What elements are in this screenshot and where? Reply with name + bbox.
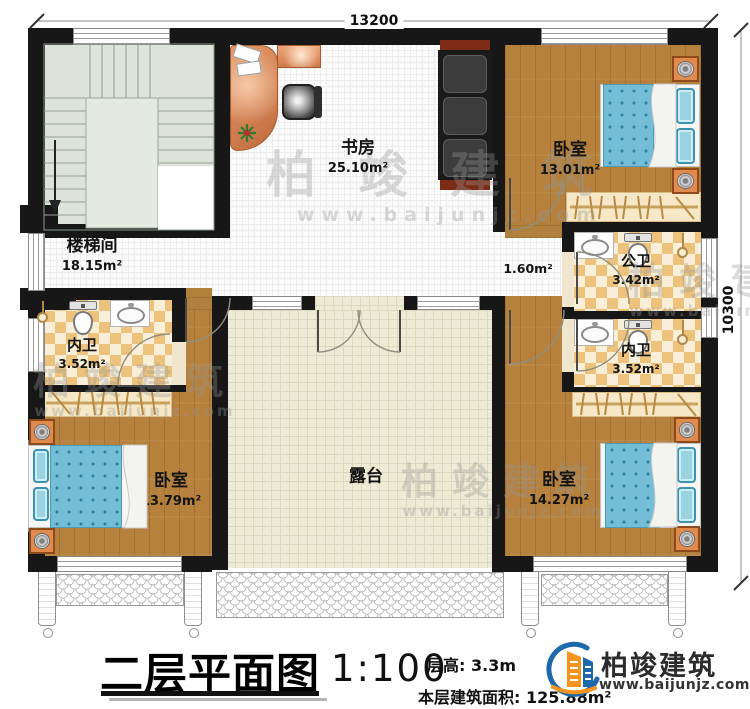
sink-counter: [110, 300, 150, 327]
porch-post: [184, 570, 202, 626]
nightstand-knob: [679, 531, 695, 547]
closet-top-right: [566, 192, 701, 222]
wall: [574, 311, 701, 319]
bed-pillow: [677, 487, 696, 523]
faucet-icon: [128, 303, 134, 307]
room-label-public-bathroom: 公卫3.42m²: [612, 252, 659, 288]
wall: [701, 338, 718, 572]
hallway-area-label: 1.60m²: [503, 259, 552, 277]
window: [701, 238, 718, 298]
brand-website: www.baijunjz.com: [599, 677, 750, 693]
room-label-bedroom-tr: 卧室13.01m²: [540, 141, 600, 179]
balcony-rail-right: [541, 574, 668, 606]
post-finial: [673, 628, 683, 638]
nightstand-knob: [34, 533, 50, 549]
window: [417, 296, 480, 310]
wall: [228, 296, 252, 310]
wall: [701, 28, 718, 238]
wall: [214, 28, 230, 238]
bed-pillow: [33, 449, 49, 483]
wall: [687, 556, 718, 572]
title-underline: [101, 691, 319, 696]
wall: [480, 296, 505, 310]
bed-pillow: [676, 88, 695, 124]
dimension-top: 13200: [345, 13, 404, 29]
wall: [562, 307, 574, 319]
nightstand-knob: [677, 61, 694, 77]
bed-pillow: [676, 128, 695, 164]
nightstand: [672, 168, 699, 194]
terrace-rail: [216, 572, 504, 618]
post-finial: [526, 628, 536, 638]
wall: [172, 300, 186, 342]
room-label-stairwell: 楼梯间18.15m²: [62, 237, 122, 275]
nightstand: [674, 526, 700, 552]
sofa-cushion: [443, 55, 487, 93]
title-underline-shadow: [109, 698, 327, 701]
wall: [28, 288, 186, 300]
faucet-icon: [592, 322, 598, 326]
sofa: [440, 180, 490, 190]
bed-mattress: [603, 84, 654, 167]
window: [252, 296, 302, 310]
sink-icon: [117, 307, 145, 324]
window: [57, 556, 182, 572]
closet-bottom-left: [44, 390, 172, 417]
sink-counter: [574, 319, 614, 346]
sink-icon: [581, 239, 609, 256]
wall: [28, 556, 57, 572]
window: [28, 318, 45, 372]
office-chair: [282, 84, 316, 120]
office-chair-back: [314, 86, 322, 118]
window: [73, 28, 170, 45]
doorway-ensuite-right: [562, 319, 574, 372]
wall: [302, 296, 315, 310]
porch-post: [668, 570, 686, 626]
sink-counter: [574, 232, 614, 259]
nightstand: [672, 56, 699, 82]
wall: [28, 28, 45, 233]
sofa-cushion: [443, 139, 487, 177]
post-finial: [43, 628, 53, 638]
room-label-study: 书房25.10m²: [328, 139, 388, 177]
faucet-icon: [592, 235, 598, 239]
doorway-bedroom-top-right: [505, 222, 562, 238]
sink-icon: [581, 326, 609, 343]
nightstand: [29, 528, 55, 554]
floor-drain-icon: [677, 247, 688, 258]
dimension-right: 10300: [721, 281, 737, 340]
doorway-ensuite-left: [172, 342, 186, 385]
wall: [28, 224, 214, 238]
wall: [493, 178, 505, 232]
bed-pillow: [677, 447, 696, 483]
wall: [182, 556, 212, 572]
room-label-bedroom-br: 卧室14.27m²: [529, 471, 589, 509]
balcony-rail-left: [56, 574, 184, 606]
nightstand-knob: [677, 173, 694, 189]
nightstand: [29, 419, 55, 445]
doorway-bedroom-bottom-left: [186, 288, 212, 310]
porch-post: [38, 570, 56, 626]
wall: [212, 296, 228, 570]
sofa: [440, 40, 490, 50]
toilet-icon: [69, 301, 97, 335]
bed-pillow: [33, 487, 49, 521]
brand-logo-icon: [543, 641, 601, 699]
wall: [404, 296, 417, 310]
floor-height-label: 层高: 3.3m: [427, 652, 516, 676]
closet-bottom-right: [572, 392, 701, 417]
stair-down-label: 下: [187, 207, 206, 228]
wall: [562, 222, 718, 232]
nightstand-knob: [34, 424, 50, 440]
bed-mattress: [50, 445, 122, 528]
nightstand: [674, 417, 700, 443]
room-label-ensuite-left: 内卫3.52m²: [58, 336, 105, 372]
wall: [44, 385, 186, 392]
post-finial: [189, 628, 199, 638]
floor-drain-icon: [677, 334, 688, 345]
room-label-terrace: 露台: [349, 467, 383, 486]
room-label-bedroom-bl: 卧室13.79m²: [141, 472, 201, 510]
window: [541, 28, 668, 45]
wall: [492, 310, 505, 570]
wall: [562, 387, 701, 392]
window: [28, 233, 45, 291]
desk-return: [277, 45, 321, 68]
nightstand-knob: [679, 422, 695, 438]
doorway-public-bathroom: [562, 252, 574, 307]
porch-post: [521, 570, 539, 626]
wall: [701, 298, 718, 307]
window: [701, 307, 718, 338]
bed-mattress: [605, 443, 660, 528]
terrace-door-sill: [315, 296, 404, 310]
wall: [562, 232, 574, 252]
room-label-ensuite-right: 内卫3.52m²: [612, 341, 659, 377]
terrace-floor: [226, 310, 492, 568]
window: [533, 556, 687, 572]
floor-drain-icon: [37, 312, 48, 323]
sofa-cushion: [443, 97, 487, 135]
floor-plan: 柏竣建筑 www.baijunjz.com 柏竣建筑 www.baijunjz.…: [0, 0, 750, 709]
